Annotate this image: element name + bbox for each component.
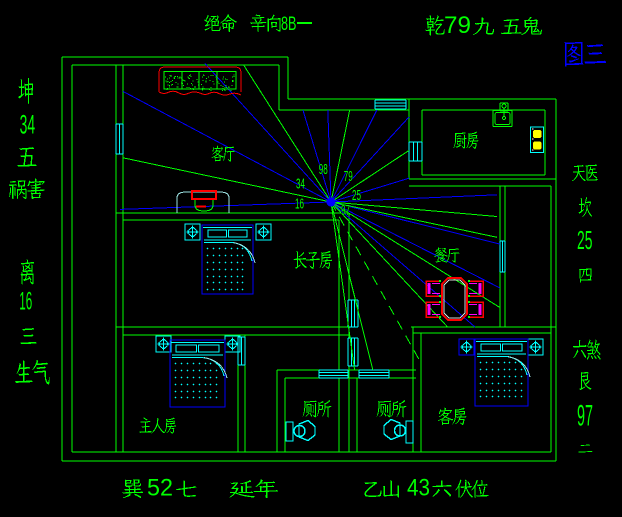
svg-text:79: 79 [344,167,353,184]
svg-text:8B: 8B [281,13,296,34]
svg-text:98: 98 [319,160,328,177]
svg-text:16: 16 [295,195,304,212]
svg-text:52: 52 [147,474,173,500]
svg-text:25: 25 [577,227,592,256]
svg-text:43: 43 [407,474,430,501]
svg-text:34: 34 [20,108,35,139]
svg-text:16: 16 [19,288,32,316]
svg-text:97: 97 [577,399,593,432]
svg-text:97: 97 [341,201,350,218]
svg-text:79: 79 [444,12,471,39]
svg-text:25: 25 [352,186,361,203]
svg-text:34: 34 [296,175,305,192]
